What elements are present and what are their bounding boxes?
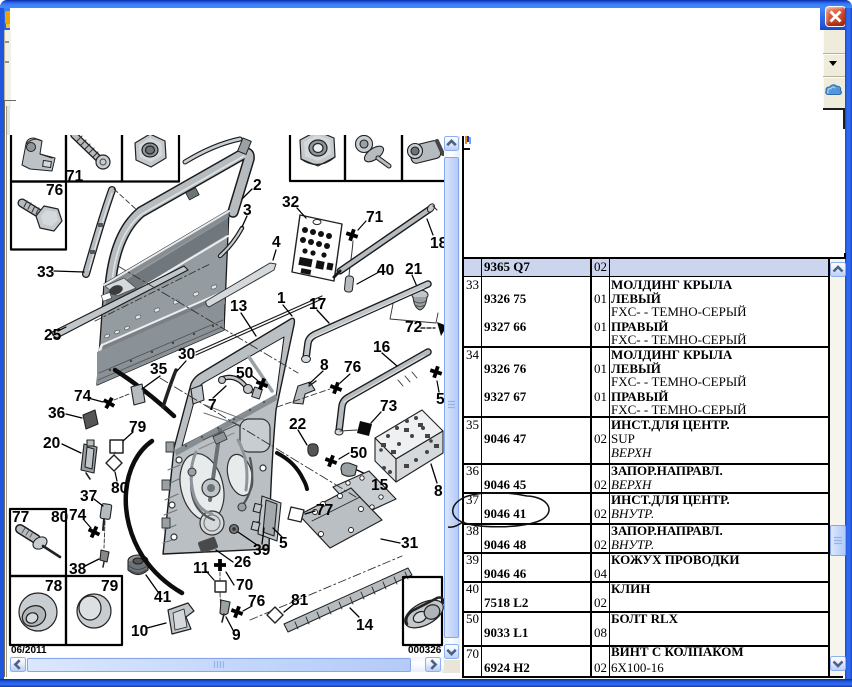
svg-text:22: 22	[289, 416, 306, 433]
svg-text:06/2011: 06/2011	[11, 645, 47, 656]
svg-text:77: 77	[12, 509, 29, 526]
svg-text:70: 70	[236, 577, 253, 594]
svg-text:20: 20	[43, 435, 60, 452]
svg-text:33: 33	[37, 264, 55, 281]
svg-text:5: 5	[436, 391, 444, 408]
svg-text:50: 50	[236, 365, 253, 382]
svg-text:76: 76	[344, 359, 362, 376]
svg-text:36: 36	[48, 405, 66, 422]
svg-text:41: 41	[154, 589, 172, 606]
svg-text:32: 32	[282, 194, 299, 211]
svg-text:10: 10	[131, 623, 148, 640]
svg-text:9: 9	[232, 627, 241, 644]
svg-text:8: 8	[320, 357, 329, 374]
svg-text:77: 77	[316, 502, 333, 519]
svg-text:80: 80	[111, 480, 128, 497]
svg-text:25: 25	[44, 327, 62, 344]
svg-text:35: 35	[150, 361, 168, 378]
svg-text:79: 79	[129, 419, 147, 436]
svg-text:39: 39	[253, 542, 271, 559]
svg-text:000326: 000326	[408, 645, 442, 656]
svg-text:50: 50	[350, 445, 367, 462]
svg-text:74: 74	[69, 507, 87, 524]
svg-text:3: 3	[243, 202, 252, 219]
svg-text:18: 18	[430, 235, 444, 252]
svg-text:72: 72	[405, 319, 422, 336]
svg-text:80: 80	[51, 509, 68, 526]
svg-text:31: 31	[401, 535, 419, 552]
svg-text:81: 81	[291, 592, 309, 609]
svg-text:37: 37	[80, 488, 97, 505]
svg-text:7: 7	[208, 397, 217, 414]
svg-text:11: 11	[193, 560, 210, 577]
svg-text:79: 79	[101, 578, 119, 595]
svg-text:21: 21	[405, 261, 423, 278]
svg-text:73: 73	[380, 398, 398, 415]
svg-text:4: 4	[272, 234, 281, 251]
svg-text:14: 14	[356, 617, 374, 634]
svg-text:2: 2	[253, 177, 262, 194]
svg-text:71: 71	[366, 209, 384, 226]
svg-text:38: 38	[69, 561, 87, 578]
svg-text:5: 5	[279, 535, 288, 552]
svg-text:74: 74	[74, 388, 92, 405]
svg-text:13: 13	[230, 298, 248, 315]
svg-text:17: 17	[309, 296, 326, 313]
svg-text:76: 76	[46, 182, 64, 199]
svg-text:26: 26	[234, 554, 252, 571]
svg-text:30: 30	[178, 346, 195, 363]
svg-text:71: 71	[66, 168, 84, 185]
svg-text:1: 1	[277, 290, 286, 307]
svg-text:76: 76	[248, 593, 266, 610]
svg-text:16: 16	[373, 339, 391, 356]
svg-text:78: 78	[45, 578, 63, 595]
svg-text:40: 40	[377, 262, 394, 279]
svg-text:15: 15	[371, 477, 389, 494]
